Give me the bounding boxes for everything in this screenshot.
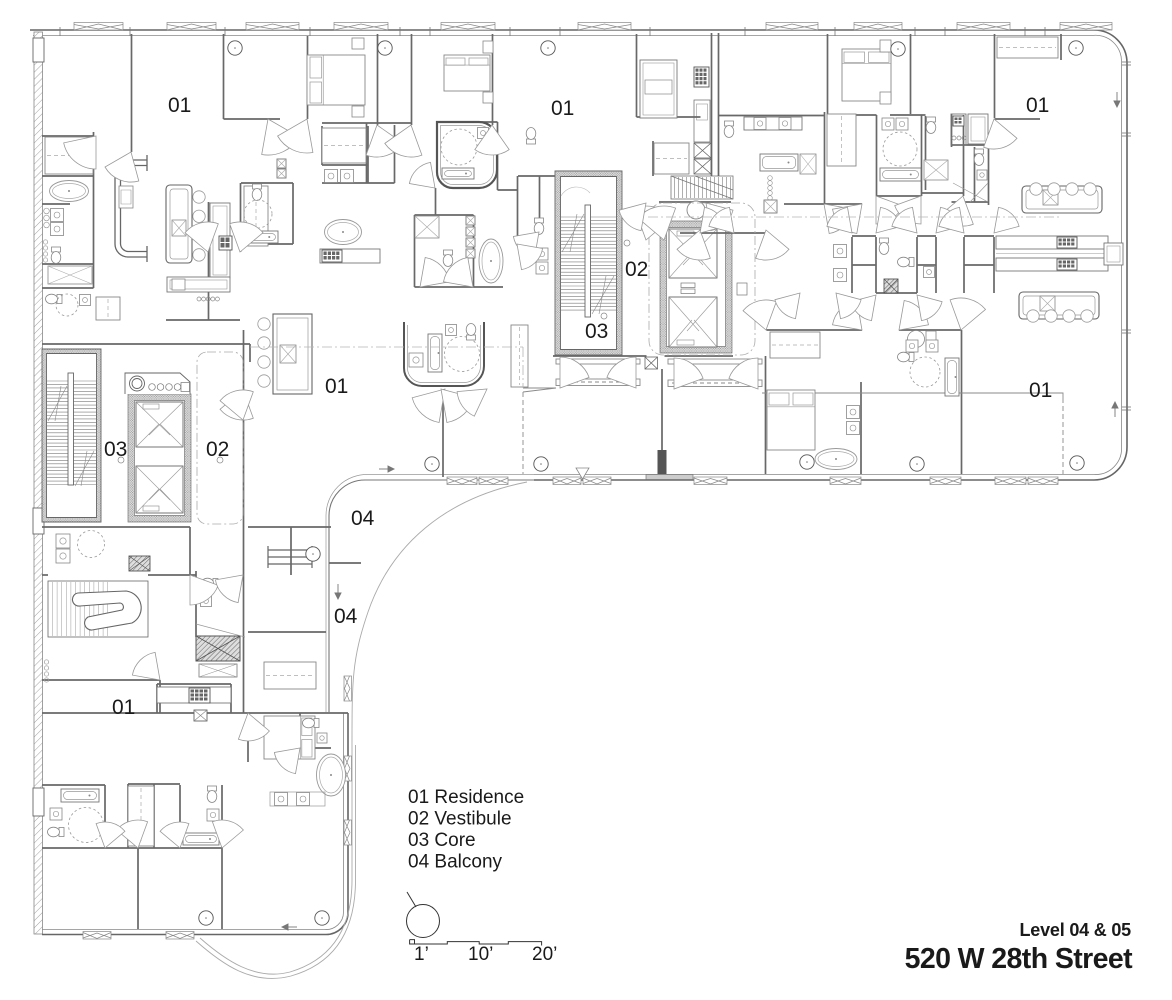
svg-text:01: 01 [1029,379,1052,402]
svg-text:03: 03 [104,438,127,461]
svg-text:03 Core: 03 Core [408,830,476,851]
svg-text:01: 01 [168,94,191,117]
svg-text:01: 01 [551,97,574,120]
svg-text:01: 01 [325,375,348,398]
svg-text:04 Balcony: 04 Balcony [408,852,503,873]
svg-text:Level 04 & 05: Level 04 & 05 [1020,920,1132,940]
svg-text:10’: 10’ [468,944,493,965]
svg-text:520 W 28th Street: 520 W 28th Street [905,943,1133,975]
svg-text:01 Residence: 01 Residence [408,787,524,808]
svg-text:20’: 20’ [532,944,557,965]
svg-text:02: 02 [625,258,648,281]
svg-text:01: 01 [1026,94,1049,117]
svg-text:04: 04 [334,605,358,628]
svg-text:1’: 1’ [414,944,429,965]
svg-text:02 Vestibule: 02 Vestibule [408,809,512,830]
svg-text:04: 04 [351,507,375,530]
svg-text:01: 01 [112,696,135,719]
svg-text:03: 03 [585,320,608,343]
svg-text:02: 02 [206,438,229,461]
